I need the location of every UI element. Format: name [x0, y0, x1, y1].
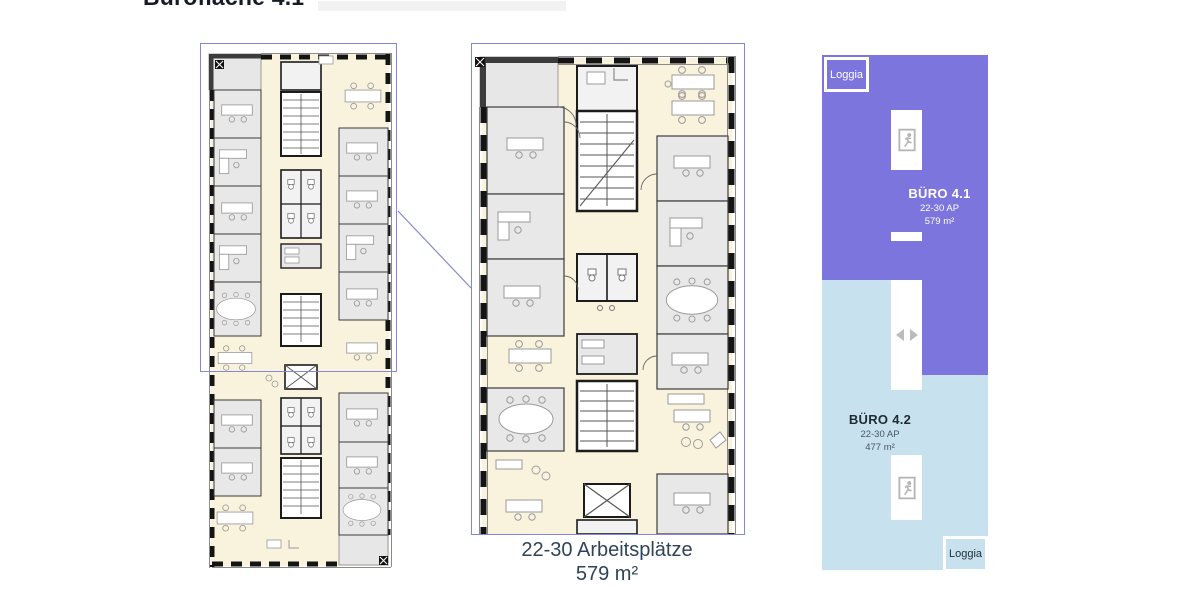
service-room: [281, 244, 321, 268]
exit-running-man-icon: [898, 128, 916, 152]
stairwell-lower: [577, 381, 637, 451]
elevator-core: [891, 280, 922, 390]
unit-42-area: 477 m²: [828, 442, 932, 453]
loggia-badge-bottom: Loggia: [943, 536, 988, 572]
caption-area: 579 m²: [471, 562, 743, 586]
floorplan-overview: [205, 48, 395, 572]
stairwell-upper: [577, 111, 637, 211]
elevator: [285, 365, 317, 389]
stair-core-lower: [891, 455, 922, 520]
floorplan-detail-frame[interactable]: [471, 43, 745, 535]
exit-running-man-icon: [898, 476, 916, 500]
core-divider-bar: [891, 232, 922, 241]
unit-42-label: BÜRO 4.2 22-30 AP 477 m²: [828, 412, 932, 453]
unit-42-name: BÜRO 4.2: [828, 412, 932, 427]
unit-41-region-lower[interactable]: [922, 280, 988, 375]
stairwell-1: [281, 92, 321, 156]
unit-41-area: 579 m²: [891, 216, 988, 227]
stairwell-3: [281, 458, 321, 518]
detail-caption: 22-30 Arbeitsplätze 579 m²: [471, 538, 743, 586]
loggia-top-label: Loggia: [830, 69, 863, 81]
elevator-left-right-arrows-icon: [894, 328, 920, 342]
elevator: [577, 484, 637, 534]
loggia-bottom-label: Loggia: [949, 548, 982, 560]
wc-block-2: [281, 398, 321, 454]
wc-block-1: [281, 170, 321, 238]
floorplan-page: Bürofläche 4.1: [0, 0, 1200, 600]
loggia-room-topleft: [209, 54, 261, 90]
office-rooms-left: [487, 107, 564, 451]
unit-41-capacity: 22-30 AP: [891, 203, 988, 214]
page-title: Bürofläche 4.1: [143, 0, 573, 11]
loggia-badge-top: Loggia: [824, 57, 869, 92]
stairwell-2: [281, 294, 321, 346]
office-rooms-right: [657, 136, 728, 534]
service-room: [577, 334, 637, 374]
zoom-connector-line: [397, 210, 472, 289]
building-schematic: Loggia Loggia BÜRO 4.1 22-30 AP 579 m² B…: [822, 55, 988, 572]
unit-41-label: BÜRO 4.1 22-30 AP 579 m²: [891, 186, 988, 227]
corner-marker: [475, 57, 485, 67]
page-title-text: Bürofläche 4.1: [143, 0, 304, 10]
stair-core-upper: [891, 110, 922, 170]
unit-41-name: BÜRO 4.1: [891, 186, 988, 201]
floorplan-detail: [472, 44, 744, 534]
caption-workplaces: 22-30 Arbeitsplätze: [471, 538, 743, 562]
loggia-room-topleft: [480, 57, 558, 107]
unit-42-capacity: 22-30 AP: [828, 429, 932, 440]
